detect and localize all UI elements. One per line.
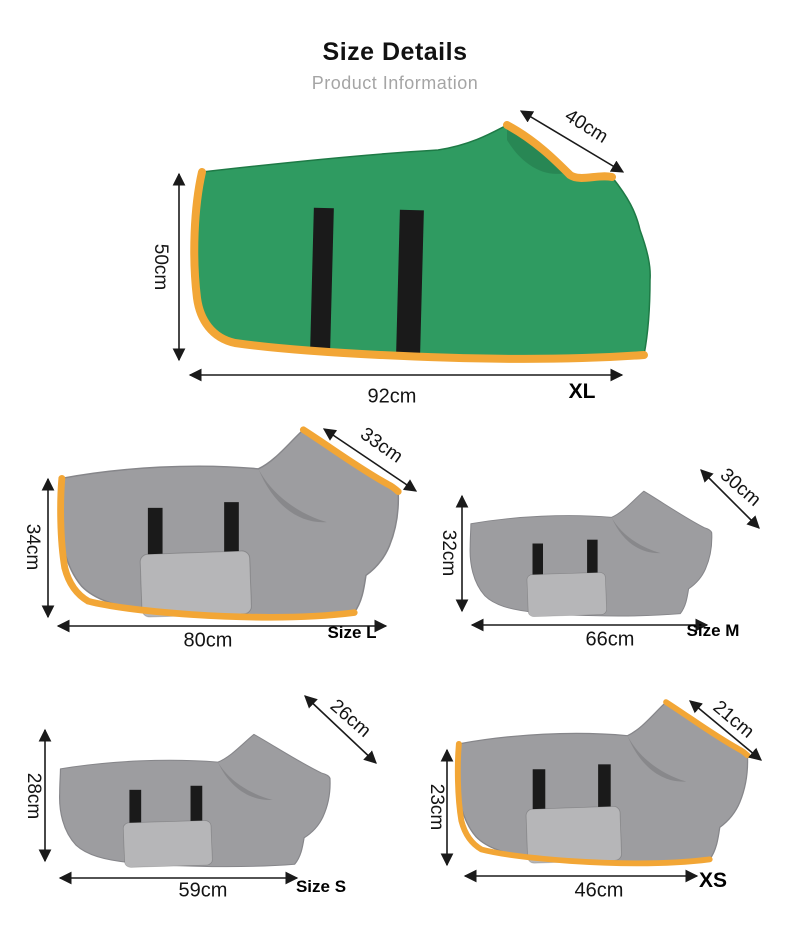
robe-illustration-m <box>466 488 718 622</box>
back-height-label-m: 32cm <box>437 530 459 576</box>
size-tag-l: Size L <box>327 623 376 643</box>
velcro-strap <box>191 786 203 823</box>
back-height-label-l: 34cm <box>21 524 43 570</box>
back-length-label-xs: 46cm <box>575 880 624 903</box>
back-height-label-xs: 23cm <box>425 784 447 830</box>
chest-flap <box>527 572 607 617</box>
size-tag-xl: XL <box>569 380 596 404</box>
page-title: Size Details <box>0 38 790 67</box>
velcro-strap <box>533 544 544 577</box>
robe-illustration-xs <box>453 698 755 870</box>
size-tag-xs: XS <box>699 869 727 893</box>
velcro-strap <box>310 208 334 350</box>
velcro-strap <box>396 210 424 355</box>
chest-flap <box>526 806 622 863</box>
robe-illustration-l <box>55 425 407 625</box>
back-height-label-s: 28cm <box>22 773 44 819</box>
chest-flap <box>123 820 212 867</box>
back-length-label-m: 66cm <box>586 629 635 652</box>
velcro-strap <box>533 769 546 812</box>
velcro-strap <box>148 508 163 558</box>
velcro-strap <box>129 790 141 825</box>
back-length-label-l: 80cm <box>184 630 233 653</box>
velcro-strap <box>224 502 239 554</box>
chest-flap <box>140 551 252 618</box>
size-chart: Size Details Product Information <box>0 0 790 950</box>
robe-illustration-s <box>55 731 337 873</box>
back-length-label-xl: 92cm <box>368 386 417 409</box>
neck-width-label-m: 30cm <box>715 464 765 511</box>
size-tag-s: Size S <box>296 877 346 897</box>
back-length-label-s: 59cm <box>179 880 228 903</box>
back-height-label-xl: 50cm <box>149 244 171 290</box>
size-tag-m: Size M <box>687 621 740 641</box>
robe-illustration-xl <box>180 112 670 367</box>
velcro-strap <box>598 764 611 809</box>
page-subtitle: Product Information <box>0 73 790 94</box>
velcro-strap <box>587 540 598 575</box>
